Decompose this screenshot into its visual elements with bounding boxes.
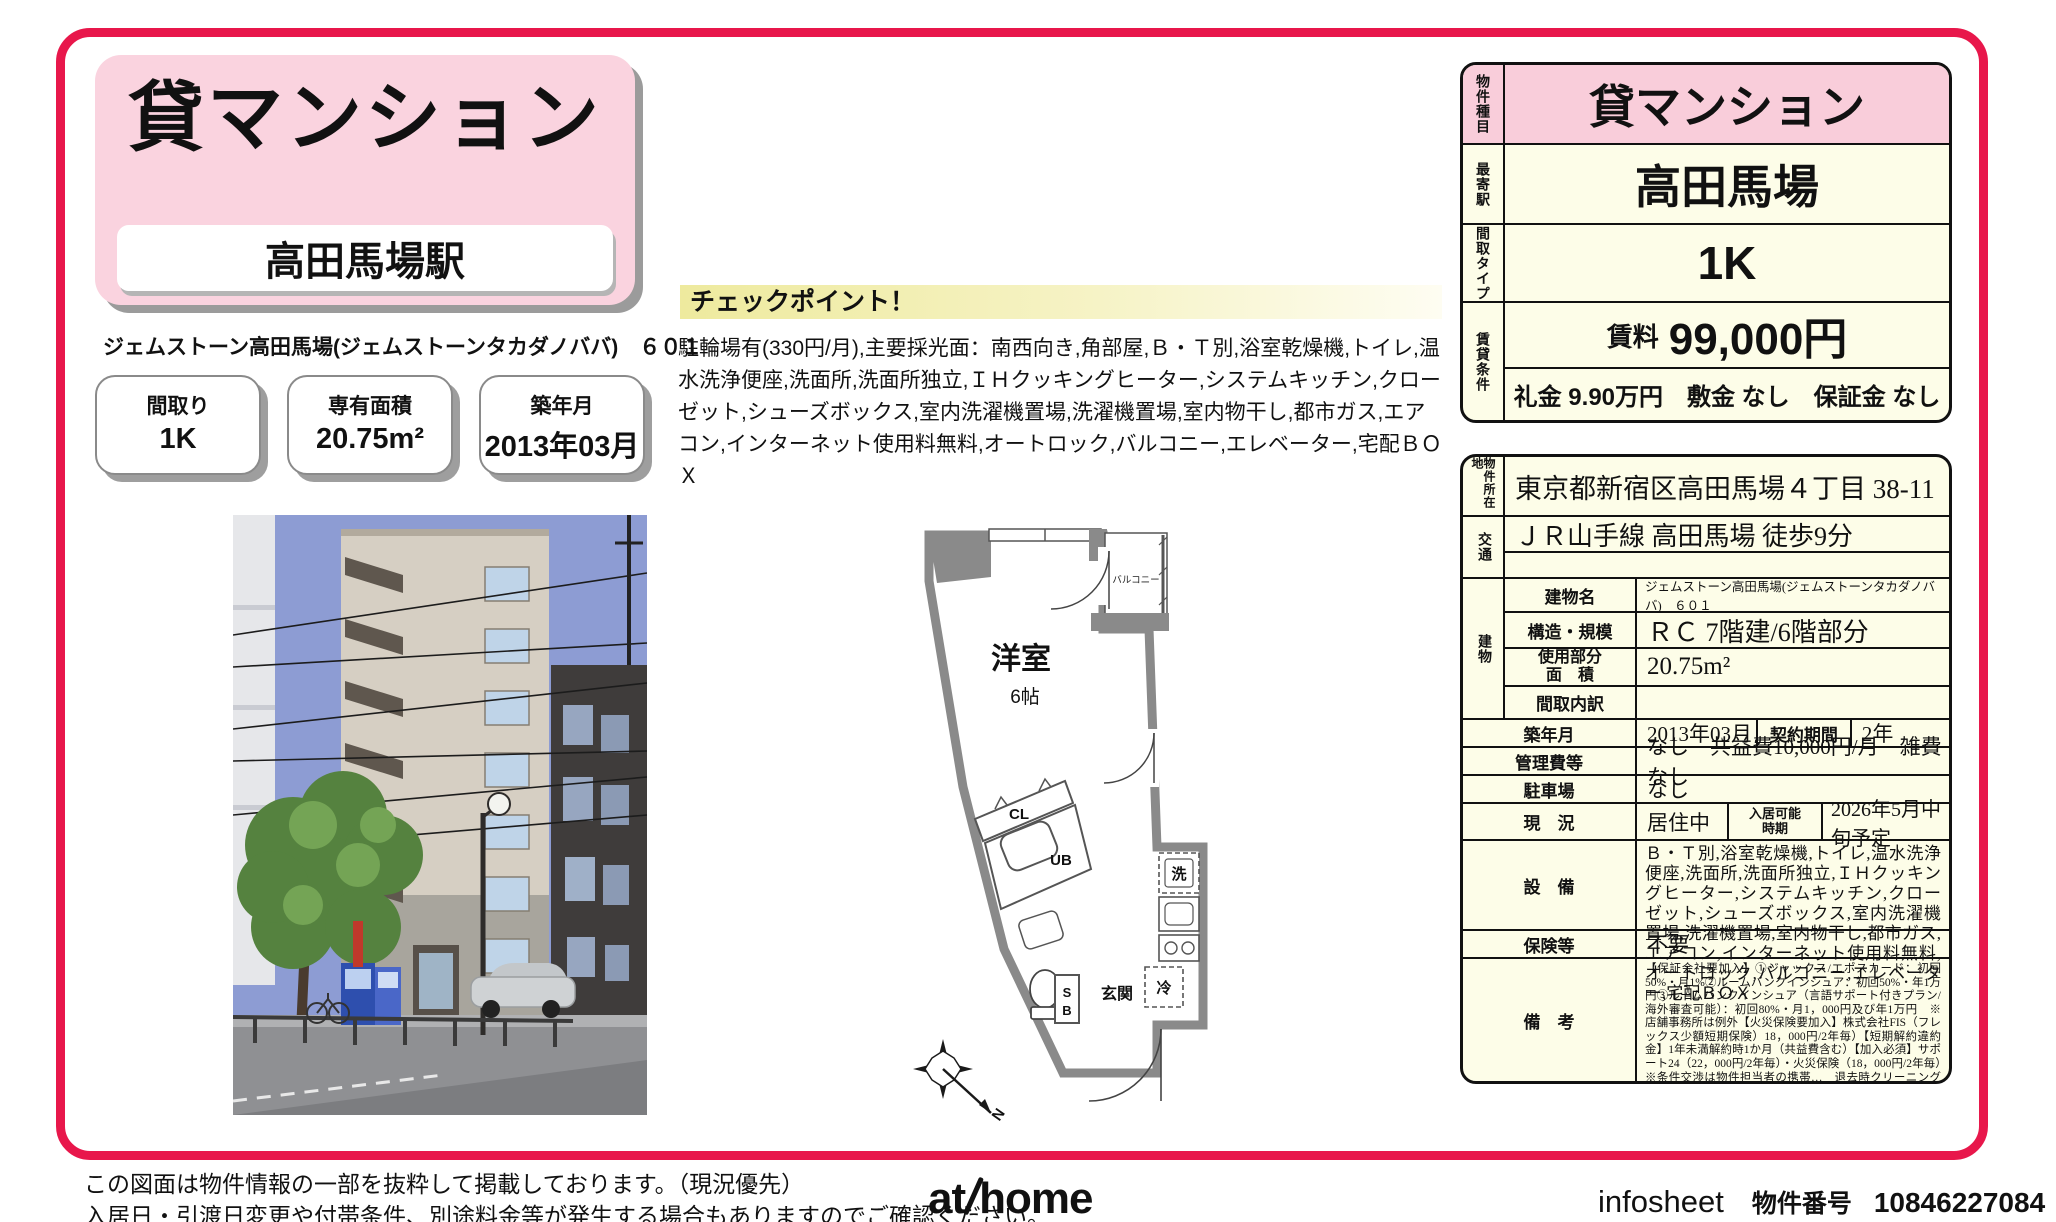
equipment-value: Ｂ・Ｔ別,浴室乾燥機,トイレ,温水洗浄便座,洗面所,洗面所独立,ＩＨクッキングヒ… [1637,841,1949,931]
building-name-label: 建物名 [1505,579,1637,613]
spec-value: 20.75m² [289,423,451,456]
spec-box-layout: 間取り 1K [95,375,261,475]
checkpoint-title: チェックポイント！ [680,285,1442,319]
movein-label-line1: 入居可能 [1749,807,1801,821]
shoebox-label-s: S [1063,985,1072,1000]
spec-label: 専有面積 [289,390,451,420]
insurance-label: 保険等 [1463,931,1637,959]
washer-label: 洗 [1171,865,1186,883]
fees-value: なし 共益費10,000円/月 雑費なし [1637,748,1949,776]
status-value: 居住中 [1637,804,1727,839]
station-box: 高田馬場駅 [117,225,613,291]
status-label: 現 況 [1463,804,1637,841]
shoebox-label-b: B [1062,1003,1071,1018]
spec-value: 1K [97,423,259,456]
floorplan-diagram: バルコニー 洋室 6帖 CL UB 洗 冷 玄関 [903,517,1251,1135]
station-value: 高田馬場 [1505,145,1949,225]
structure-label: 構造・規模 [1505,613,1637,649]
equipment-label: 設 備 [1463,841,1637,931]
logo-home: home [979,1174,1092,1222]
spec-box-area: 専有面積 20.75m² [287,375,453,475]
fridge-label: 冷 [1156,979,1171,997]
address-label: 物件所在地 [1463,457,1505,517]
status-row: 居住中 入居可能 時期 2026年5月中旬予定 [1637,804,1949,841]
checkpoint-body: 駐輪場有(330円/月),主要採光面：南西向き,角部屋,Ｂ・Ｔ別,浴室乾燥機,ト… [678,333,1446,493]
title-card: 貸マンション 高田馬場駅 [95,55,635,305]
compass-icon: N [913,1039,1008,1123]
fees-label: 管理費等 [1463,748,1637,776]
spec-row: 間取り 1K 専有面積 20.75m² 築年月 2013年03月 [95,375,645,475]
madori-value [1637,687,1949,720]
spec-value: 2013年03月 [481,423,643,465]
balcony-label: バルコニー [1112,575,1159,586]
parking-label: 駐車場 [1463,776,1637,804]
room-label: 洋室 [991,642,1051,676]
address-value: 東京都新宿区高田馬場４丁目 38-11 [1505,457,1949,517]
area-label-line1: 使用部分 [1538,649,1602,667]
property-number-group: 物件番号 10846227084 [1750,1184,2051,1222]
room-size-label: 6帖 [1010,686,1040,708]
movein-value: 2026年5月中旬予定 [1823,804,1949,839]
movein-label: 入居可能 時期 [1727,804,1823,839]
type-label: 物件種目 [1463,65,1505,145]
main-border-box: 貸マンション 高田馬場駅 ジェムストーン高田馬場(ジェムストーンタカダノババ) … [56,28,1988,1160]
rent-cell: 賃料 99,000円 [1505,303,1949,369]
infosheet-page: 貸マンション 高田馬場駅 ジェムストーン高田馬場(ジェムストーンタカダノババ) … [0,0,2056,1222]
insurance-value: 不要 [1637,931,1949,959]
station-label: 最寄駅 [1463,145,1505,225]
built-label: 築年月 [1463,720,1637,748]
rent-value: 99,000円 [1669,303,1848,367]
building-label: 建物 [1463,579,1505,720]
access-label: 交通 [1463,517,1505,579]
terms-label: 賃貸条件 [1463,303,1505,420]
layout-value: 1K [1505,225,1949,303]
spec-label: 築年月 [481,390,643,420]
logo-at: at [928,1174,965,1222]
athome-logo: at home [928,1174,1092,1222]
area-label-line2: 面 積 [1546,667,1594,685]
access-line-1: ＪＲ山手線 高田馬場 徒歩9分 [1505,517,1949,553]
deposit-line: 礼金 9.90万円 敷金 なし 保証金 なし [1505,369,1949,420]
detail-table: 物件所在地 東京都新宿区高田馬場４丁目 38-11 交通 ＪＲ山手線 高田馬場 … [1460,454,1952,1084]
station-name: 高田馬場駅 [265,229,465,287]
movein-label-line2: 時期 [1762,822,1788,836]
unit-bath-label: UB [1050,852,1072,869]
madori-label: 間取内訳 [1505,687,1637,720]
entrance-label: 玄関 [1101,984,1133,1003]
north-label: N [988,1105,1008,1124]
area-label: 使用部分 面 積 [1505,649,1637,687]
type-value: 貸マンション [1505,65,1949,145]
right-column: 物件種目 貸マンション 最寄駅 高田馬場 間取タイプ 1K 賃貸条件 賃料 99… [1460,62,1952,1084]
spec-box-built: 築年月 2013年03月 [479,375,645,475]
footer-infosheet: infosheet 物件番号 10846227084 [1598,1184,2051,1222]
infosheet-word: infosheet [1598,1184,1724,1220]
rent-label: 賃料 [1607,317,1659,354]
building-photo [233,515,647,1115]
property-number-value: 10846227084 [1874,1187,2045,1219]
summary-table: 物件種目 貸マンション 最寄駅 高田馬場 間取タイプ 1K 賃貸条件 賃料 99… [1460,62,1952,423]
notes-value: 【保証会社要加入】①ジャックス/エポスカード：初回50%・月1%②ルームバンクイ… [1637,959,1949,1081]
disclaimer-line-1: この図面は物件情報の一部を抜粋して掲載しております。（現況優先） [84,1168,1050,1200]
notes-label: 備 考 [1463,959,1637,1081]
spec-label: 間取り [97,390,259,420]
layout-label: 間取タイプ [1463,225,1505,303]
property-number-label: 物件番号 [1752,1184,1852,1220]
structure-value: ＲＣ 7階建/6階部分 [1637,613,1949,649]
closet-label: CL [1009,806,1029,823]
area-value: 20.75m² [1637,649,1949,687]
building-name-value: ジェムストーン高田馬場(ジェムストーンタカダノババ) ６０１ [1637,579,1949,613]
building-name-line: ジェムストーン高田馬場(ジェムストーンタカダノババ) ６０１ [103,331,702,361]
property-category-title: 貸マンション [95,55,635,157]
wall-block [929,535,991,583]
disclaimer-line-2: 入居日・引渡日変更や付帯条件、別途料金等が発生する場合もありますのでご確認くださ… [84,1200,1050,1222]
footer-disclaimer: この図面は物件情報の一部を抜粋して掲載しております。（現況優先） 入居日・引渡日… [84,1168,1050,1222]
